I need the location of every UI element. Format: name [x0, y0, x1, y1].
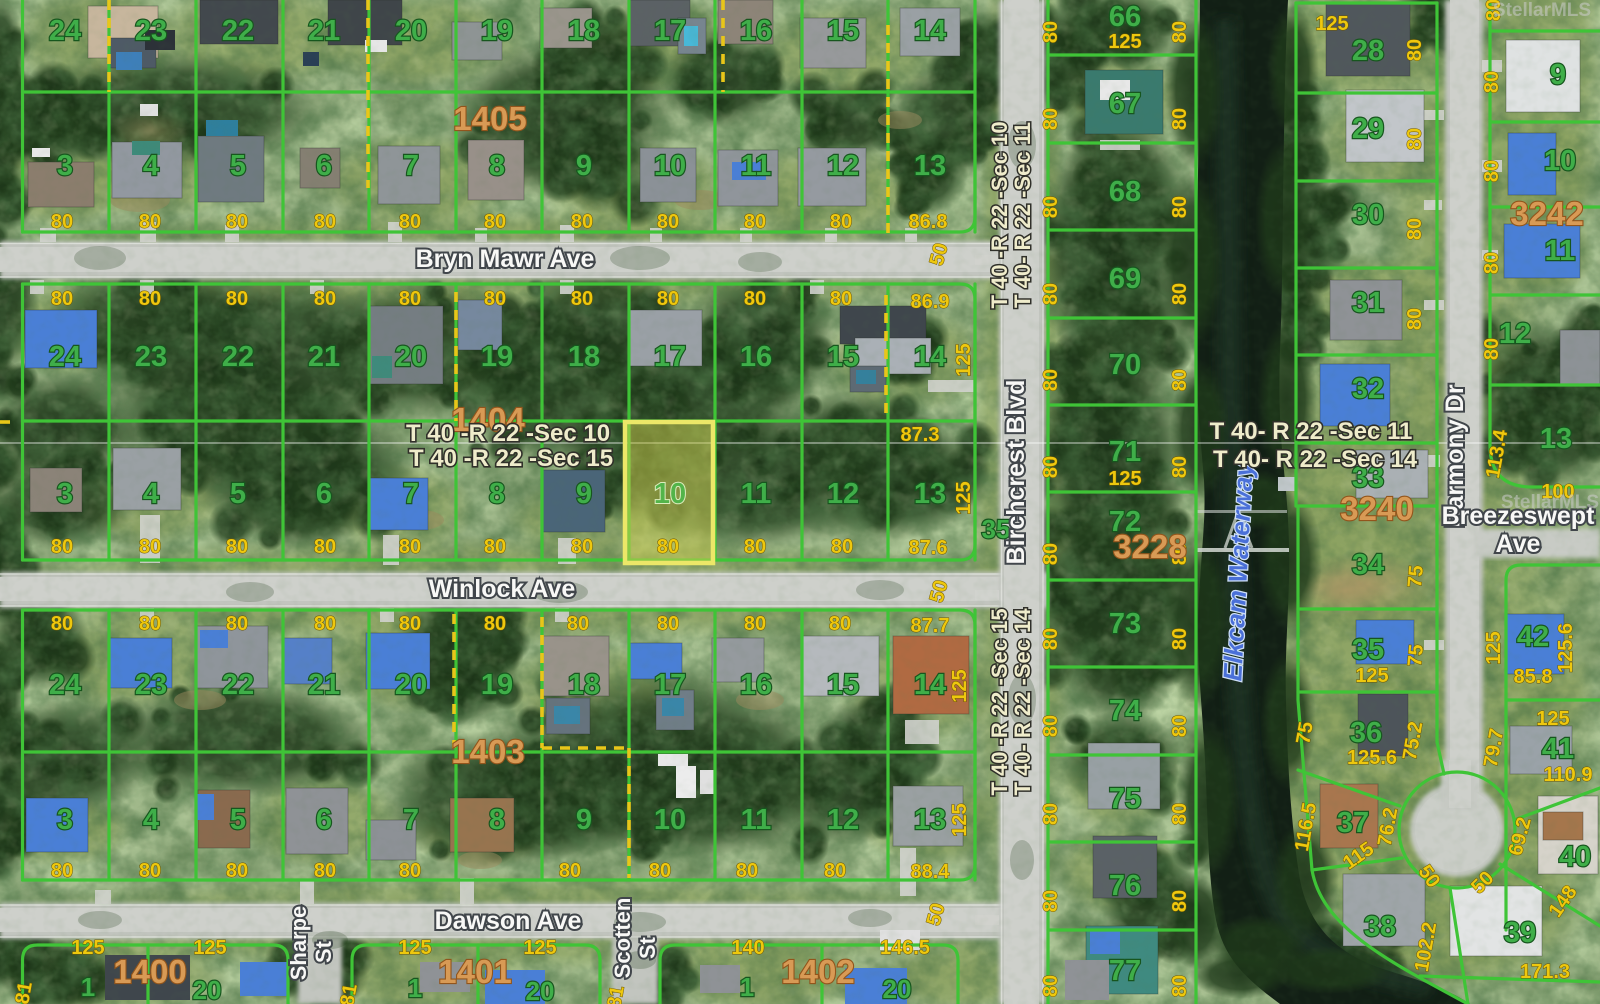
svg-text:125: 125	[1355, 665, 1388, 687]
svg-text:80: 80	[1169, 21, 1191, 43]
svg-text:80: 80	[1040, 108, 1062, 130]
svg-text:80: 80	[1481, 252, 1503, 274]
svg-text:10: 10	[1544, 145, 1576, 177]
svg-text:80: 80	[559, 860, 581, 882]
svg-text:140: 140	[731, 937, 764, 959]
svg-text:3: 3	[57, 804, 73, 836]
svg-text:7: 7	[403, 478, 419, 510]
svg-text:14: 14	[914, 341, 946, 373]
svg-text:13: 13	[1540, 423, 1572, 455]
svg-text:17: 17	[654, 341, 686, 373]
svg-text:15: 15	[827, 341, 859, 373]
svg-text:88.4: 88.4	[911, 861, 951, 883]
svg-text:14: 14	[914, 15, 946, 47]
svg-text:110.9: 110.9	[1544, 764, 1593, 786]
svg-text:9: 9	[576, 150, 592, 182]
svg-text:11: 11	[741, 804, 772, 836]
svg-text:T 40- R 22 -Sec 11: T 40- R 22 -Sec 11	[1010, 122, 1035, 308]
svg-text:21: 21	[308, 669, 340, 701]
svg-text:80: 80	[226, 860, 248, 882]
svg-text:3: 3	[57, 150, 73, 182]
svg-text:3242: 3242	[1510, 195, 1583, 232]
svg-text:125: 125	[1483, 631, 1505, 664]
svg-text:80: 80	[1040, 890, 1062, 912]
svg-text:18: 18	[568, 341, 600, 373]
svg-text:80: 80	[226, 211, 248, 233]
svg-text:17: 17	[654, 669, 686, 701]
svg-text:80: 80	[484, 211, 506, 233]
svg-text:80: 80	[51, 288, 73, 310]
svg-text:16: 16	[740, 341, 772, 373]
svg-text:42: 42	[1517, 621, 1549, 653]
svg-text:125: 125	[193, 937, 226, 959]
svg-text:19: 19	[481, 341, 513, 373]
svg-text:80: 80	[1481, 160, 1503, 182]
svg-text:14: 14	[914, 669, 946, 701]
svg-text:81: 81	[336, 982, 362, 1004]
svg-text:19: 19	[481, 669, 513, 701]
svg-text:12: 12	[827, 804, 859, 836]
svg-text:StellarMLS: StellarMLS	[1501, 492, 1599, 513]
svg-text:80: 80	[571, 288, 593, 310]
svg-text:23: 23	[135, 15, 167, 47]
svg-text:125: 125	[1108, 31, 1141, 53]
svg-text:125: 125	[523, 937, 556, 959]
svg-text:80: 80	[51, 613, 73, 635]
svg-text:StellarMLS: StellarMLS	[1493, 0, 1591, 21]
svg-text:85.8: 85.8	[1514, 666, 1553, 688]
svg-text:80: 80	[399, 288, 421, 310]
svg-text:20: 20	[395, 341, 427, 373]
svg-text:20: 20	[883, 974, 912, 1004]
svg-text:80: 80	[736, 860, 758, 882]
svg-text:80: 80	[226, 613, 248, 635]
svg-text:80: 80	[1169, 283, 1191, 305]
svg-text:125: 125	[949, 803, 971, 836]
svg-text:Sharpe: Sharpe	[286, 906, 311, 981]
svg-text:23: 23	[135, 341, 167, 373]
svg-text:80: 80	[571, 211, 593, 233]
svg-text:T 40 -R 22 -Sec 10: T 40 -R 22 -Sec 10	[406, 420, 610, 447]
svg-text:80: 80	[1481, 71, 1503, 93]
svg-text:75: 75	[1292, 720, 1318, 746]
svg-text:80: 80	[657, 211, 679, 233]
svg-text:41: 41	[1542, 733, 1574, 765]
svg-text:125: 125	[71, 937, 104, 959]
svg-text:80: 80	[1169, 628, 1191, 650]
svg-text:80: 80	[484, 613, 506, 635]
svg-text:13: 13	[914, 804, 946, 836]
svg-text:80: 80	[1040, 456, 1062, 478]
svg-text:80: 80	[139, 211, 161, 233]
svg-text:34: 34	[1352, 549, 1384, 581]
svg-text:11: 11	[1545, 235, 1576, 267]
svg-text:81: 81	[11, 980, 37, 1004]
svg-text:Scotten: Scotten	[610, 898, 635, 979]
svg-text:125.6: 125.6	[1347, 747, 1397, 769]
svg-text:80: 80	[649, 860, 671, 882]
svg-text:24: 24	[49, 15, 81, 47]
svg-text:21: 21	[308, 341, 340, 373]
svg-text:T 40- R 22 -Sec 14: T 40- R 22 -Sec 14	[1213, 446, 1418, 473]
svg-text:5: 5	[230, 804, 246, 836]
svg-text:28: 28	[1352, 35, 1384, 67]
svg-text:67: 67	[1109, 88, 1141, 120]
svg-text:171.3: 171.3	[1520, 961, 1570, 983]
svg-text:T 40 -R 22 -Sec 15: T 40 -R 22 -Sec 15	[409, 445, 613, 472]
svg-text:T 40- R 22 -Sec 11: T 40- R 22 -Sec 11	[1210, 418, 1413, 445]
svg-text:20: 20	[526, 976, 555, 1004]
svg-text:80: 80	[744, 536, 766, 558]
svg-text:80: 80	[1169, 456, 1191, 478]
svg-text:146.5: 146.5	[880, 937, 930, 959]
svg-text:8: 8	[489, 150, 505, 182]
svg-text:80: 80	[1040, 21, 1062, 43]
svg-text:75: 75	[1109, 783, 1141, 815]
svg-text:80: 80	[314, 288, 336, 310]
svg-text:6: 6	[316, 150, 332, 182]
svg-text:St: St	[311, 940, 336, 963]
svg-text:19: 19	[481, 15, 513, 47]
svg-text:86.9: 86.9	[911, 291, 950, 313]
svg-text:125: 125	[1315, 13, 1348, 35]
svg-text:30: 30	[1352, 199, 1384, 231]
svg-text:80: 80	[824, 860, 846, 882]
svg-text:1403: 1403	[451, 733, 524, 770]
svg-text:125: 125	[949, 669, 971, 702]
svg-text:76: 76	[1109, 870, 1141, 902]
svg-text:St: St	[635, 936, 660, 959]
svg-text:80: 80	[51, 536, 73, 558]
svg-text:31: 31	[1352, 287, 1384, 319]
svg-text:22: 22	[222, 669, 254, 701]
svg-text:80: 80	[744, 613, 766, 635]
svg-text:Dawson Ave: Dawson Ave	[435, 907, 582, 935]
svg-text:29: 29	[1352, 113, 1384, 145]
svg-text:20: 20	[395, 15, 427, 47]
svg-text:20: 20	[193, 975, 222, 1004]
svg-text:1: 1	[81, 972, 95, 1002]
svg-text:1405: 1405	[453, 100, 526, 137]
svg-text:12: 12	[827, 478, 859, 510]
svg-text:17: 17	[654, 15, 686, 47]
svg-text:24: 24	[49, 341, 81, 373]
svg-text:16: 16	[740, 669, 772, 701]
svg-text:80: 80	[1040, 803, 1062, 825]
svg-text:22: 22	[222, 15, 254, 47]
svg-text:1400: 1400	[113, 953, 186, 990]
svg-text:80: 80	[830, 288, 852, 310]
svg-text:23: 23	[135, 669, 167, 701]
svg-text:9: 9	[1550, 59, 1566, 91]
svg-text:4: 4	[143, 478, 159, 510]
svg-text:32: 32	[1352, 373, 1384, 405]
svg-text:37: 37	[1337, 807, 1369, 839]
svg-text:80: 80	[567, 613, 589, 635]
svg-text:66: 66	[1109, 1, 1141, 33]
svg-text:80: 80	[314, 211, 336, 233]
svg-text:80: 80	[1481, 338, 1503, 360]
svg-text:125: 125	[1536, 708, 1569, 730]
svg-text:80: 80	[657, 536, 679, 558]
svg-text:80: 80	[1040, 975, 1062, 997]
svg-text:80: 80	[1040, 628, 1062, 650]
svg-text:80: 80	[1404, 218, 1426, 240]
svg-text:80: 80	[1169, 803, 1191, 825]
svg-text:3: 3	[57, 478, 73, 510]
svg-text:80: 80	[399, 536, 421, 558]
svg-text:80: 80	[1169, 890, 1191, 912]
svg-text:8: 8	[489, 804, 505, 836]
svg-text:80: 80	[399, 613, 421, 635]
svg-text:80: 80	[139, 613, 161, 635]
svg-text:80: 80	[1169, 196, 1191, 218]
svg-text:80: 80	[1040, 283, 1062, 305]
svg-text:80: 80	[1169, 108, 1191, 130]
svg-text:1402: 1402	[781, 953, 854, 990]
svg-text:80: 80	[314, 613, 336, 635]
svg-text:22: 22	[222, 341, 254, 373]
svg-text:80: 80	[1169, 975, 1191, 997]
svg-text:80: 80	[744, 211, 766, 233]
svg-text:80: 80	[226, 288, 248, 310]
svg-text:125: 125	[398, 937, 431, 959]
svg-text:5: 5	[230, 150, 246, 182]
svg-text:80: 80	[1169, 715, 1191, 737]
svg-text:40: 40	[1559, 841, 1591, 873]
svg-text:80: 80	[1404, 308, 1426, 330]
svg-text:80: 80	[484, 288, 506, 310]
svg-text:20: 20	[395, 669, 427, 701]
svg-text:4: 4	[143, 150, 159, 182]
svg-text:80: 80	[1040, 715, 1062, 737]
svg-text:125.6: 125.6	[1555, 623, 1577, 673]
svg-text:35: 35	[1352, 634, 1384, 666]
svg-text:86.8: 86.8	[909, 211, 948, 233]
svg-text:125: 125	[953, 481, 975, 514]
svg-text:80: 80	[314, 536, 336, 558]
svg-text:71: 71	[1109, 436, 1141, 468]
svg-text:11: 11	[741, 478, 772, 510]
svg-text:69: 69	[1109, 263, 1141, 295]
svg-text:75: 75	[1404, 564, 1428, 588]
svg-text:80: 80	[51, 211, 73, 233]
svg-text:80: 80	[1040, 196, 1062, 218]
svg-text:3228: 3228	[1113, 528, 1186, 565]
svg-text:18: 18	[568, 15, 600, 47]
svg-text:80: 80	[831, 536, 853, 558]
svg-text:80: 80	[139, 536, 161, 558]
svg-text:T 40- R 22 -Sec 14: T 40- R 22 -Sec 14	[1010, 608, 1035, 796]
svg-text:80: 80	[314, 860, 336, 882]
svg-text:87.3: 87.3	[901, 424, 940, 446]
svg-text:3240: 3240	[1340, 490, 1413, 527]
svg-text:12: 12	[1499, 318, 1531, 350]
svg-text:Birchcrest Blvd: Birchcrest Blvd	[1002, 380, 1030, 565]
svg-text:75: 75	[1404, 643, 1428, 667]
svg-text:21: 21	[308, 15, 340, 47]
svg-text:80: 80	[1404, 39, 1426, 61]
svg-text:6: 6	[316, 478, 332, 510]
svg-text:11: 11	[741, 150, 772, 182]
svg-text:13: 13	[914, 478, 946, 510]
svg-text:Bryn Mawr Ave: Bryn Mawr Ave	[416, 245, 595, 273]
svg-text:80: 80	[1404, 128, 1426, 150]
svg-text:125: 125	[1108, 468, 1141, 490]
svg-text:7: 7	[403, 804, 419, 836]
svg-text:T 40 -R 22 -Sec 10: T 40 -R 22 -Sec 10	[987, 121, 1012, 308]
svg-text:10: 10	[654, 150, 686, 182]
svg-text:1: 1	[740, 972, 754, 1002]
svg-text:87.7: 87.7	[911, 615, 950, 637]
svg-text:70: 70	[1109, 349, 1141, 381]
svg-text:7: 7	[403, 150, 419, 182]
svg-text:39: 39	[1504, 917, 1536, 949]
svg-text:38: 38	[1364, 911, 1396, 943]
svg-text:Winlock Ave: Winlock Ave	[429, 575, 576, 603]
svg-text:80: 80	[139, 860, 161, 882]
svg-text:18: 18	[568, 669, 600, 701]
svg-text:13: 13	[914, 150, 946, 182]
svg-text:80: 80	[830, 211, 852, 233]
svg-text:4: 4	[143, 804, 159, 836]
svg-text:1401: 1401	[438, 953, 511, 990]
svg-text:12: 12	[827, 150, 859, 182]
svg-text:80: 80	[657, 613, 679, 635]
svg-text:36: 36	[1350, 717, 1382, 749]
svg-text:74: 74	[1109, 695, 1141, 727]
svg-text:80: 80	[399, 860, 421, 882]
svg-text:80: 80	[571, 536, 593, 558]
svg-text:87.6: 87.6	[909, 537, 948, 559]
svg-text:77: 77	[1109, 955, 1141, 987]
svg-text:80: 80	[51, 860, 73, 882]
svg-text:15: 15	[827, 15, 859, 47]
svg-text:80: 80	[657, 288, 679, 310]
svg-text:80: 80	[1040, 369, 1062, 391]
svg-text:T 40 -R 22 -Sec 15: T 40 -R 22 -Sec 15	[987, 608, 1012, 795]
svg-text:125: 125	[953, 343, 975, 376]
svg-text:68: 68	[1109, 176, 1141, 208]
svg-text:73: 73	[1109, 608, 1141, 640]
svg-text:80: 80	[399, 211, 421, 233]
svg-text:80: 80	[1169, 369, 1191, 391]
svg-text:24: 24	[49, 669, 81, 701]
svg-text:80: 80	[226, 536, 248, 558]
svg-text:16: 16	[740, 15, 772, 47]
svg-text:9: 9	[576, 804, 592, 836]
svg-text:1: 1	[408, 973, 422, 1003]
svg-text:80: 80	[744, 288, 766, 310]
svg-text:Ave: Ave	[1496, 530, 1541, 558]
svg-text:9: 9	[576, 478, 592, 510]
svg-text:80: 80	[139, 288, 161, 310]
svg-text:10: 10	[654, 804, 686, 836]
svg-text:80: 80	[1040, 543, 1062, 565]
svg-text:10: 10	[654, 478, 686, 510]
svg-text:80: 80	[829, 613, 851, 635]
svg-text:80: 80	[484, 536, 506, 558]
svg-text:15: 15	[827, 669, 859, 701]
svg-text:5: 5	[230, 478, 246, 510]
svg-text:6: 6	[316, 804, 332, 836]
svg-text:8: 8	[489, 478, 505, 510]
